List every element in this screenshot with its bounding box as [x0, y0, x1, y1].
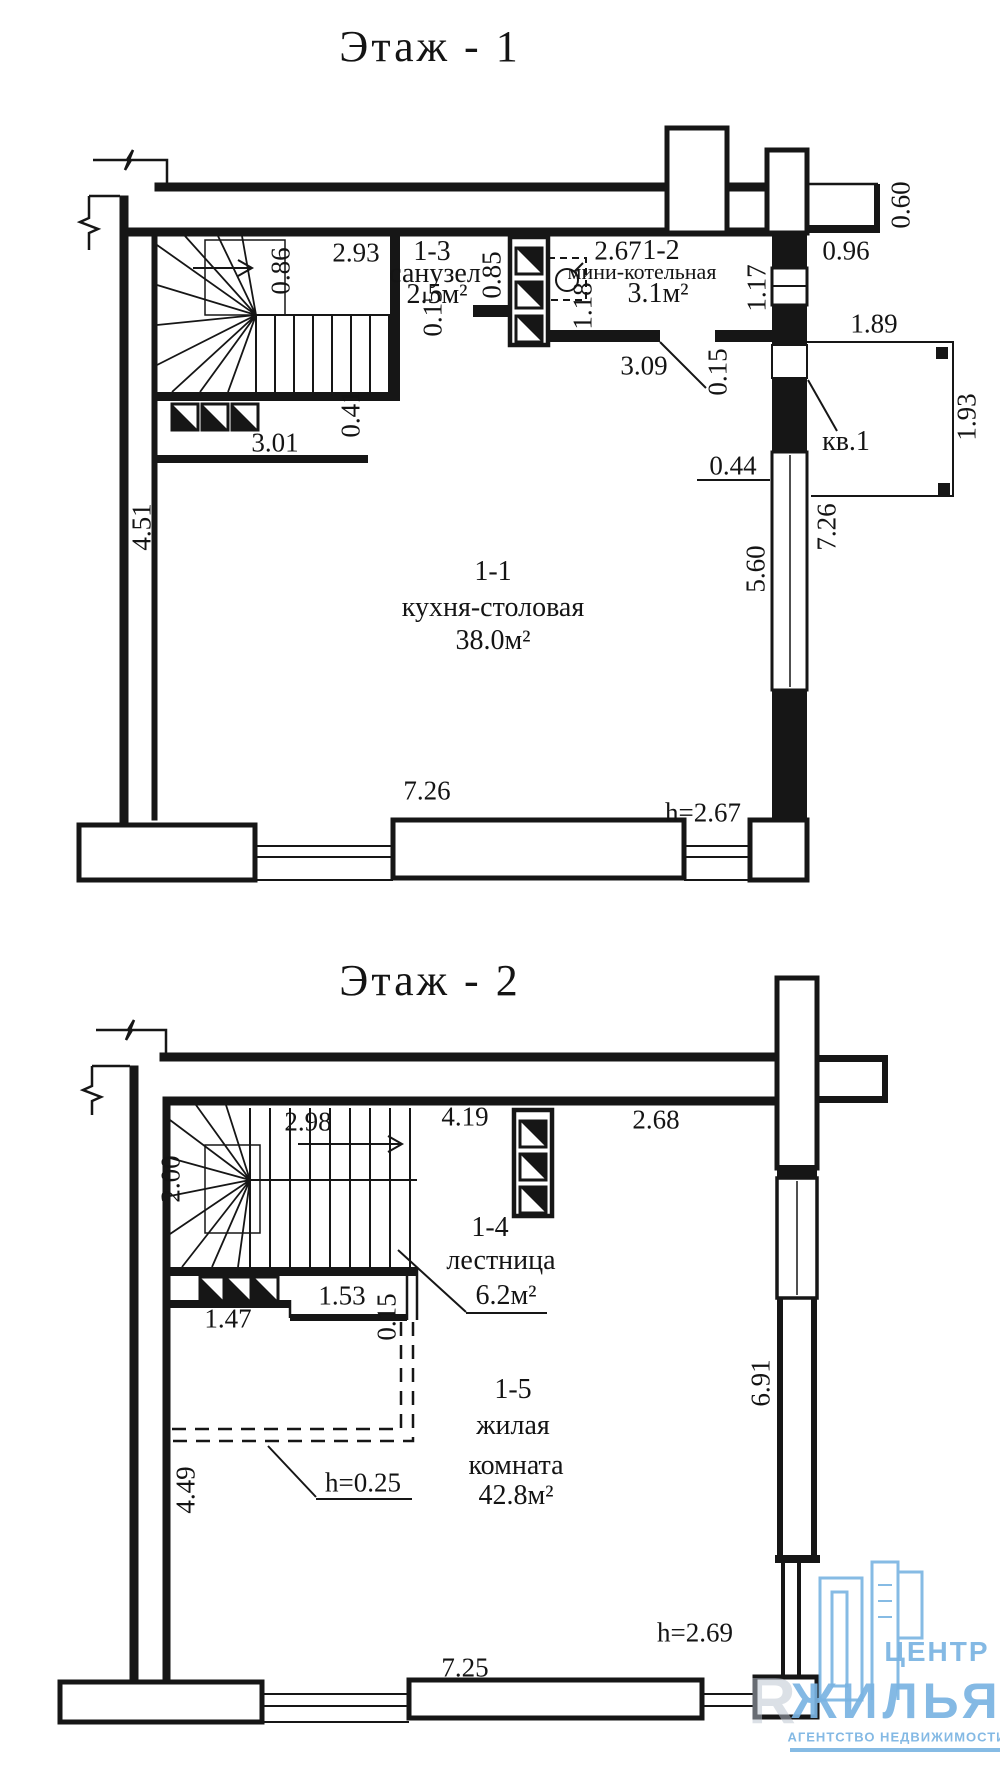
- dim-f2-stair-left: 2.00: [158, 1155, 185, 1202]
- wall-break-icon: [83, 1066, 101, 1115]
- chimney-block: [667, 128, 727, 233]
- room-1-5-name: жилая: [476, 1412, 550, 1440]
- room-1-1-code: 1-1: [474, 558, 511, 586]
- dim-f2-right-height: 6.91: [748, 1359, 775, 1406]
- dim-f1-stair-top: 0.86: [268, 247, 295, 294]
- room-1-4-area: 6.2м²: [475, 1282, 536, 1310]
- dim-f2-bottom-width: 7.25: [441, 1655, 488, 1682]
- dim-f1-boiler-side: 1.18: [570, 282, 597, 329]
- dim-f1-porch-width: 1.89: [850, 311, 897, 338]
- wall-break-icon: [96, 1020, 166, 1053]
- dim-f1-right-height: 7.26: [814, 503, 841, 550]
- f1-ceiling-height: h=2.67: [665, 800, 741, 827]
- floor1-title: Этаж - 1: [339, 25, 520, 69]
- insulation-marks: [172, 404, 258, 430]
- floor2-walls: [60, 978, 888, 1722]
- dim-f2-left-height: 4.49: [173, 1466, 200, 1513]
- dim-f1-stair-bottom: 3.01: [251, 430, 298, 457]
- wall-break-icon: [80, 196, 98, 250]
- low-ceiling-outline: [168, 1322, 401, 1429]
- insulation-marks: [200, 1277, 278, 1301]
- window: [702, 1694, 755, 1706]
- window: [262, 1694, 409, 1722]
- dim-f1-porch-depth: 1.93: [954, 393, 981, 440]
- dim-f1-wc-wall: 0.15: [420, 289, 447, 336]
- apartment-label: кв.1: [822, 428, 870, 456]
- dim-f2-stair-bot1: 1.47: [204, 1306, 251, 1333]
- room-1-1-area: 38.0м²: [455, 627, 530, 655]
- direction-arrow-icon: [193, 260, 252, 276]
- dim-f2-stair-bot2: 1.53: [318, 1283, 365, 1310]
- dim-f1-bottom-width: 7.26: [403, 778, 450, 805]
- window: [255, 846, 393, 880]
- stair-winders: [157, 236, 256, 392]
- room-1-4-name: лестница: [446, 1247, 555, 1275]
- dim-f2-stair-top2: 4.19: [441, 1104, 488, 1131]
- chimney-block: [777, 978, 817, 1168]
- logo-zhilya-text: ЖИЛЬЯ: [791, 1676, 1000, 1726]
- entry-wall-stub: [715, 330, 772, 342]
- wc-wall: [473, 305, 512, 317]
- dim-f1-window-small: 1.17: [744, 264, 771, 311]
- floorplan-sheet: Этаж - 1 2.93 0.86 1-3 санузел 2.5м² 0.8…: [0, 0, 1000, 1767]
- wall-break-icon: [93, 150, 167, 183]
- logo-center-text: ЦЕНТР: [884, 1638, 989, 1666]
- porch: [807, 342, 953, 496]
- dim-f1-left-height: 4.51: [129, 503, 156, 550]
- room-1-4-code: 1-4: [471, 1214, 508, 1242]
- dim-f2-thin-wall: 0.15: [374, 1293, 401, 1340]
- dim-f1-chimney-side: 0.60: [888, 181, 915, 228]
- corner-column: [767, 150, 807, 233]
- dim-f2-top-right: 2.68: [632, 1107, 679, 1134]
- f2-ceiling-height: h=2.69: [657, 1620, 733, 1647]
- dim-f1-stair-width: 2.93: [332, 240, 379, 267]
- dim-f1-boiler-bottom: 3.09: [620, 353, 667, 380]
- dim-f1-shaft-side: 0.85: [479, 251, 506, 298]
- floor2-title: Этаж - 2: [339, 959, 520, 1003]
- room-1-1-name: кухня-столовая: [402, 594, 584, 622]
- entry-door-opening: [772, 345, 807, 378]
- dim-f1-stair-ledge: 0.41: [338, 390, 365, 437]
- logo-watermark: R: [748, 1667, 796, 1733]
- room-1-5-code: 1-5: [494, 1376, 531, 1404]
- window: [684, 846, 750, 880]
- boiler-wall: [548, 330, 660, 342]
- room-1-5-name2: комната: [468, 1452, 563, 1480]
- dim-f1-window-offset: 0.44: [709, 453, 756, 480]
- logo-agency-text: АГЕНТСТВО НЕДВИЖИМОСТИ: [788, 1731, 1000, 1744]
- f2-low-ceiling: h=0.25: [325, 1470, 401, 1497]
- vent-shaft: [514, 1110, 552, 1216]
- room-1-2-area: 3.1м²: [627, 280, 688, 308]
- room-1-5-area: 42.8м²: [478, 1482, 553, 1510]
- leader-line: [808, 380, 837, 431]
- dim-f2-stair-top1: 2.98: [284, 1109, 331, 1136]
- dim-f1-ledge: 0.96: [822, 238, 869, 265]
- vent-shaft: [510, 237, 548, 345]
- dim-f1-entry-wall: 0.15: [705, 348, 732, 395]
- dim-f1-window-len: 5.60: [743, 545, 770, 592]
